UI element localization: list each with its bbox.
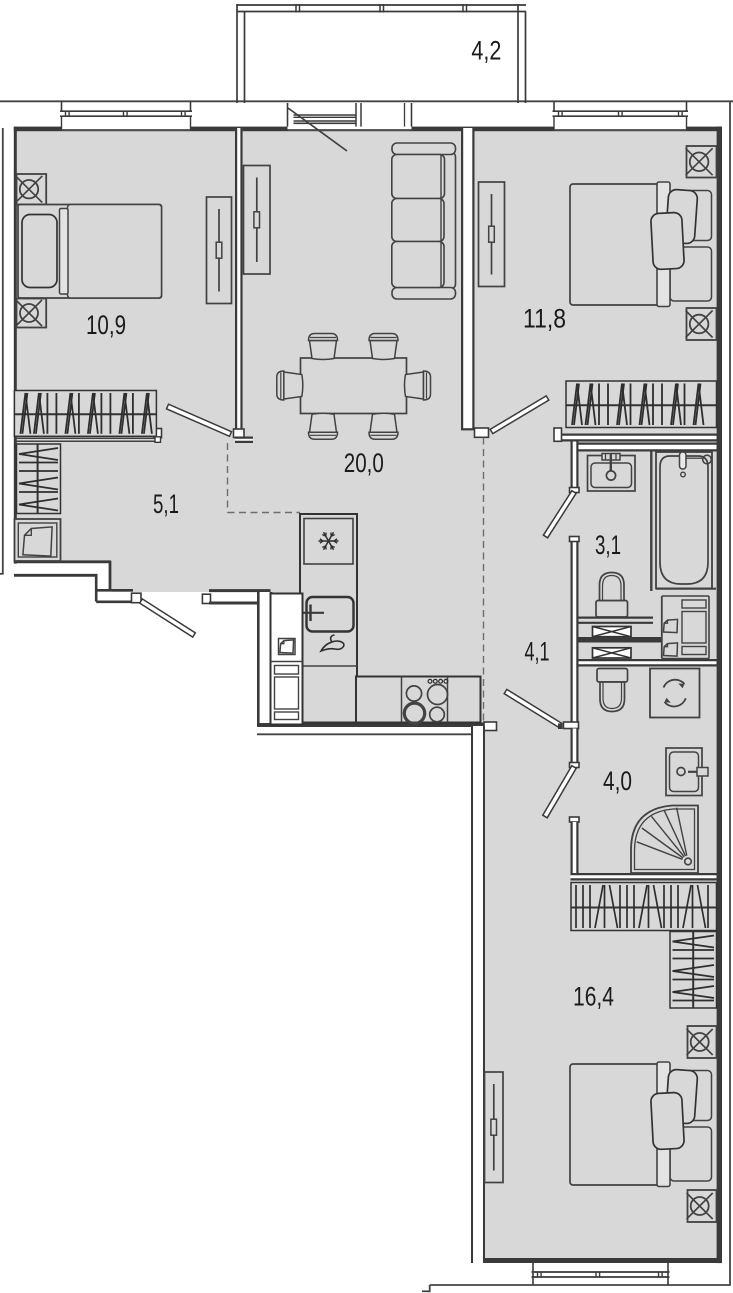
svg-text:4,1: 4,1 xyxy=(525,637,550,667)
svg-text:4,0: 4,0 xyxy=(603,766,632,796)
svg-text:3,1: 3,1 xyxy=(595,530,621,560)
svg-text:20,0: 20,0 xyxy=(344,448,384,478)
svg-text:10,9: 10,9 xyxy=(86,310,126,340)
svg-text:4,2: 4,2 xyxy=(471,36,501,66)
svg-text:5,1: 5,1 xyxy=(153,489,179,519)
svg-text:11,8: 11,8 xyxy=(523,304,566,334)
svg-text:16,4: 16,4 xyxy=(573,982,614,1012)
